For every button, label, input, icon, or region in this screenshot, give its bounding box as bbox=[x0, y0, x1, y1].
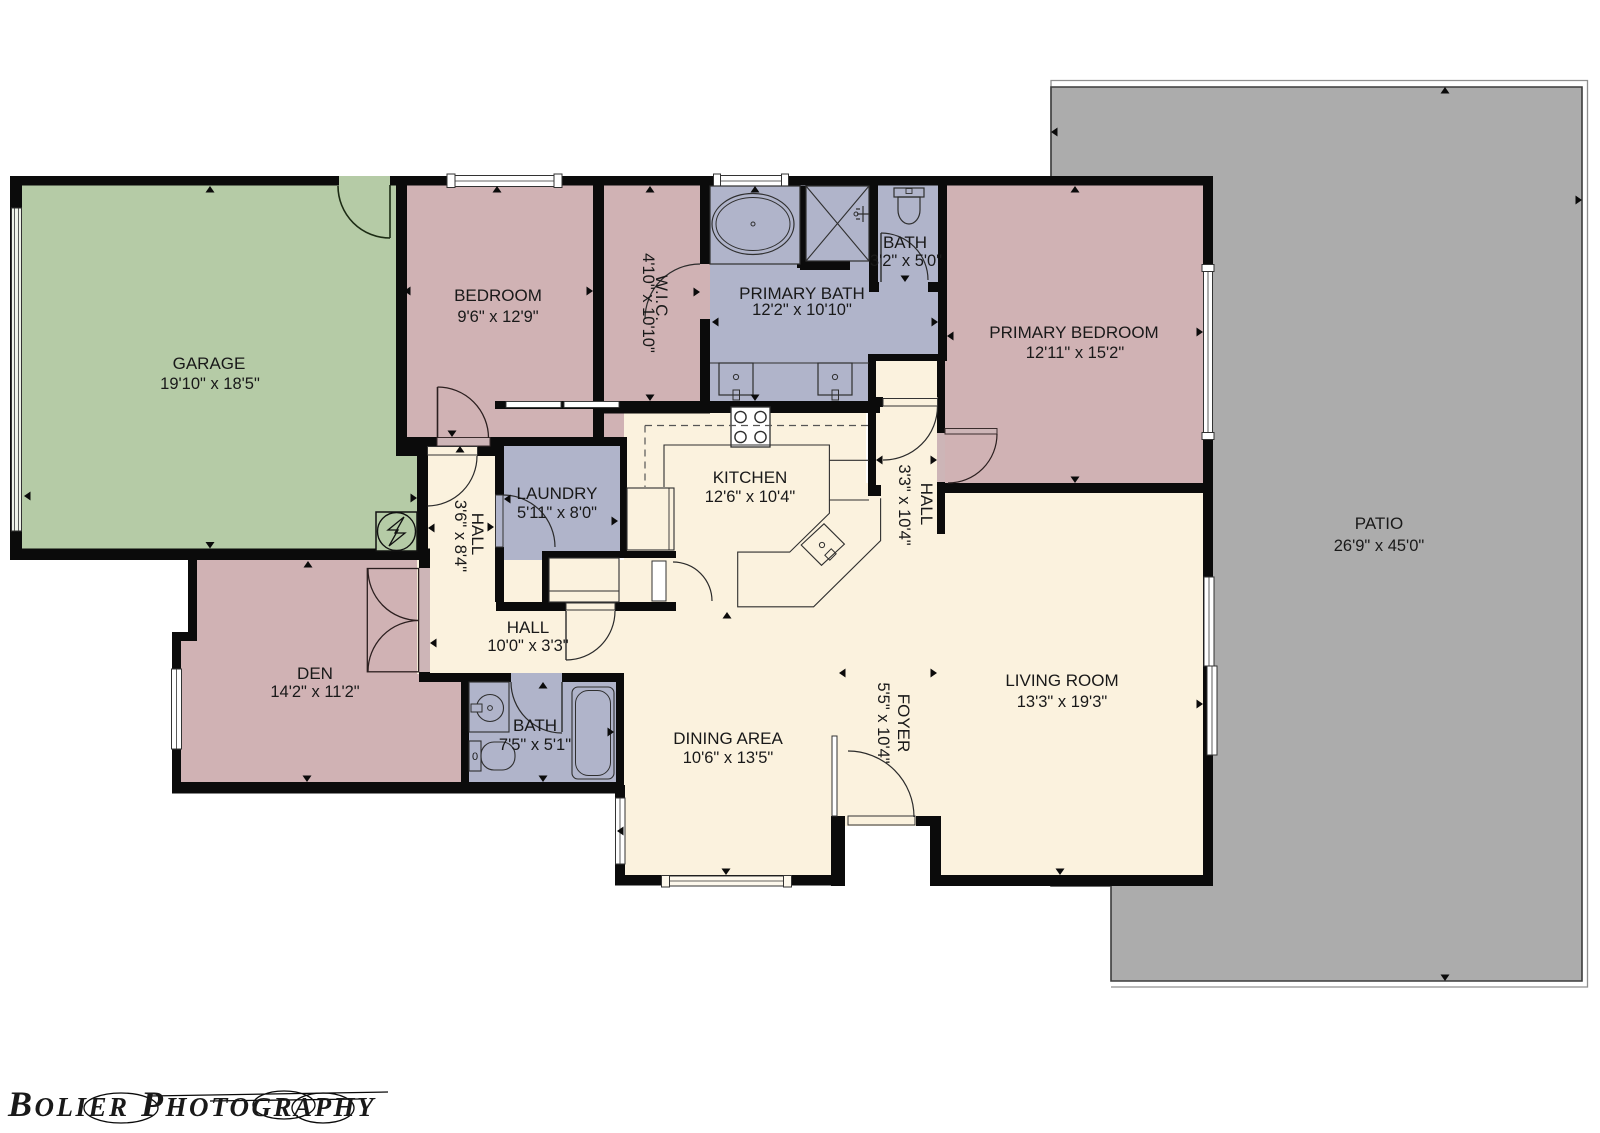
svg-text:HALL: HALL bbox=[917, 483, 936, 526]
svg-text:12'11" x 15'2": 12'11" x 15'2" bbox=[1026, 344, 1125, 362]
svg-text:10'6" x 13'5": 10'6" x 13'5" bbox=[683, 749, 774, 767]
svg-text:LAUNDRY: LAUNDRY bbox=[517, 484, 598, 503]
svg-text:3'3" x 10'4": 3'3" x 10'4" bbox=[895, 464, 913, 545]
svg-text:GARAGE: GARAGE bbox=[173, 354, 246, 373]
svg-text:19'10" x 18'5": 19'10" x 18'5" bbox=[160, 375, 260, 393]
svg-text:0: 0 bbox=[472, 751, 478, 763]
svg-text:9'6" x 12'9": 9'6" x 12'9" bbox=[457, 308, 538, 326]
svg-text:5'5" x 10'4": 5'5" x 10'4" bbox=[874, 682, 892, 763]
svg-text:LIVING ROOM: LIVING ROOM bbox=[1005, 671, 1118, 690]
svg-text:3'6" x 8'4": 3'6" x 8'4" bbox=[451, 500, 469, 572]
svg-text:26'9" x 45'0": 26'9" x 45'0" bbox=[1334, 537, 1425, 555]
svg-text:3'2" x 5'0": 3'2" x 5'0" bbox=[870, 252, 942, 270]
svg-text:10'0" x 3'3": 10'0" x 3'3" bbox=[487, 637, 568, 655]
svg-text:5'11" x 8'0": 5'11" x 8'0" bbox=[517, 504, 597, 522]
svg-text:BATH: BATH bbox=[513, 716, 557, 735]
svg-text:FOYER: FOYER bbox=[894, 694, 913, 753]
svg-text:HALL: HALL bbox=[468, 513, 487, 556]
svg-text:BEDROOM: BEDROOM bbox=[454, 286, 542, 305]
svg-text:BATH: BATH bbox=[883, 233, 927, 252]
svg-text:DEN: DEN bbox=[297, 664, 333, 683]
svg-text:7'5" x 5'1": 7'5" x 5'1" bbox=[499, 736, 571, 754]
svg-text:13'3" x 19'3": 13'3" x 19'3" bbox=[1017, 693, 1108, 711]
svg-text:KITCHEN: KITCHEN bbox=[713, 468, 788, 487]
svg-text:4'10" x 10'10": 4'10" x 10'10" bbox=[639, 253, 657, 353]
svg-text:12'2" x 10'10": 12'2" x 10'10" bbox=[752, 301, 852, 319]
svg-text:HALL: HALL bbox=[507, 618, 550, 637]
svg-text:14'2" x 11'2": 14'2" x 11'2" bbox=[270, 683, 359, 701]
svg-text:PRIMARY BEDROOM: PRIMARY BEDROOM bbox=[989, 323, 1158, 342]
svg-text:PATIO: PATIO bbox=[1355, 514, 1404, 533]
svg-text:DINING AREA: DINING AREA bbox=[673, 729, 783, 748]
svg-text:12'6" x 10'4": 12'6" x 10'4" bbox=[705, 488, 796, 506]
